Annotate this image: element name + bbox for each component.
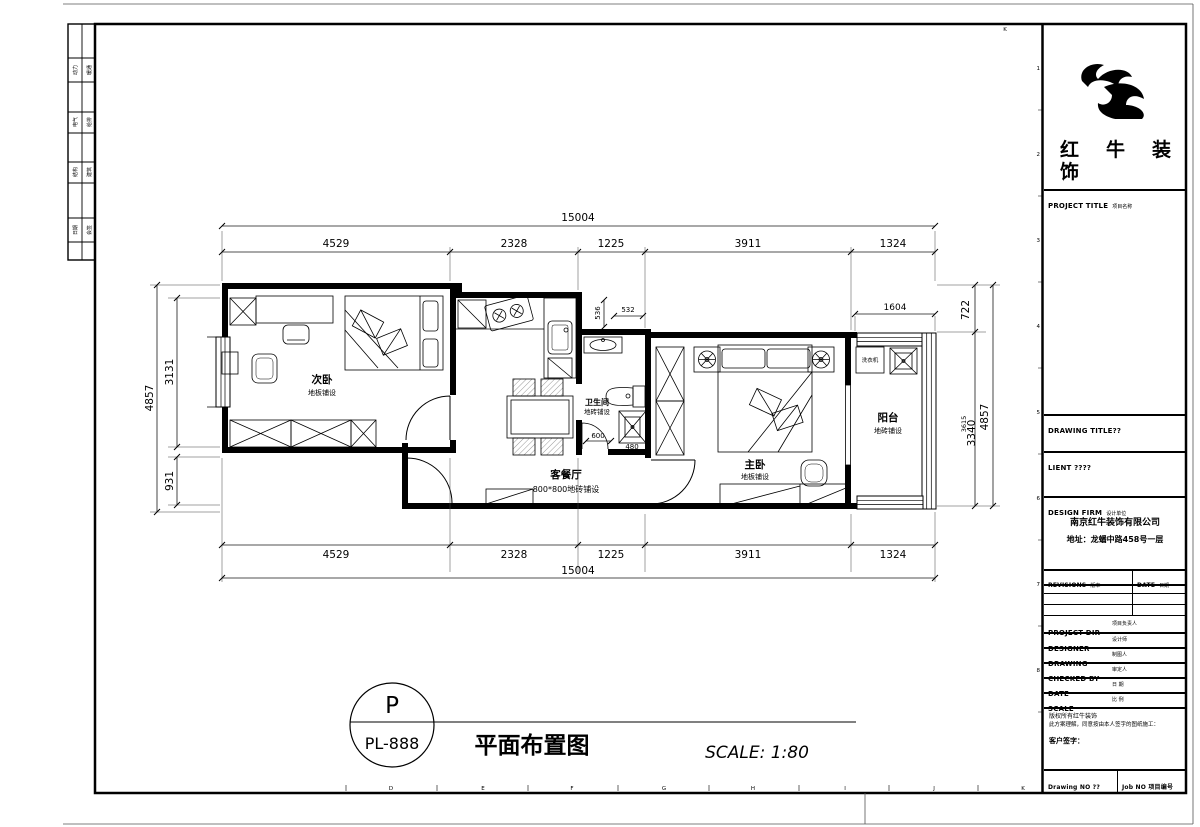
dim-shower-width: 480	[625, 443, 638, 451]
project-title-label: PROJECT TITLE	[1048, 202, 1108, 210]
counter	[544, 298, 576, 378]
design-firm-section: DESIGN FIRM设计单位 南京红牛装饰有限公司 地址：龙蟠中路458号一层	[1044, 498, 1186, 571]
revision-row	[1044, 594, 1186, 605]
drawing-title-section: DRAWING TITLE??	[1044, 416, 1186, 453]
dim-bath-niche-h: 532	[621, 306, 634, 314]
dim-bottom-seg: 4529	[323, 549, 350, 561]
ruler-letter: J	[932, 786, 935, 792]
kitchen-furniture	[456, 295, 576, 378]
copyright-line1: 版权所有红牛装饰	[1049, 713, 1183, 721]
dim-top-seg: 1324	[880, 238, 907, 250]
nightstand	[694, 347, 720, 372]
ruler-letter: G	[662, 786, 666, 792]
washbasin	[584, 337, 622, 353]
master-door	[651, 460, 695, 504]
bubble-code: PL-888	[365, 734, 420, 753]
room-label-bathroom: 卫生间	[585, 397, 609, 407]
sheet-frame	[63, 4, 1193, 824]
footer-title: P PL-888 平面布置图 SCALE: 1:80	[350, 683, 856, 767]
dim-left: 3131	[164, 359, 176, 386]
bedroom2-furniture	[222, 296, 443, 447]
revisions-header: REVISIONS版本 DATE日期	[1044, 571, 1186, 586]
scale-label-zh: 比 例	[1112, 696, 1124, 703]
room-labels: 次卧 地板铺设 客餐厅 800*800地砖铺设 卫生间 地砖铺设 主卧 地板铺设…	[308, 356, 902, 494]
room-label-master: 主卧	[745, 458, 766, 471]
bed	[718, 345, 812, 452]
ruler-number: 5	[1037, 410, 1041, 416]
ruler-letter: I	[844, 786, 846, 792]
floor-plan-canvas: 动力 暖通 电气 给排 结构 建筑 日期 会签 D E F G H I J K …	[0, 0, 1200, 827]
project-dir-row: PROJECT DIR项目负责人	[1044, 616, 1186, 634]
ruler-number: 7	[1037, 582, 1041, 588]
dining-chair	[513, 379, 563, 455]
room-finish-bedroom2: 地板铺设	[308, 388, 336, 397]
checked-by-row: CHECKED BY审定人	[1044, 664, 1186, 679]
drawing-sheet: 动力 暖通 电气 给排 结构 建筑 日期 会签 D E F G H I J K …	[0, 0, 1200, 827]
ruler-letter: K	[1021, 786, 1025, 792]
master-furniture	[656, 345, 846, 507]
toilet	[606, 386, 645, 407]
sink	[548, 321, 572, 354]
checked-by-label-zh: 审定人	[1112, 666, 1127, 673]
dimensions: 15004 4529 2328 1225 3911 1324 4529 2328…	[144, 212, 1000, 582]
company-logo-icon	[1074, 61, 1156, 119]
dim-overall-bottom: 15004	[561, 565, 595, 577]
strip-cell: 建筑	[86, 167, 93, 177]
designer-label-zh: 设计师	[1112, 636, 1127, 643]
ruler-number: 2	[1037, 152, 1041, 158]
ruler-number: 8	[1037, 668, 1041, 674]
bed	[345, 296, 443, 370]
dim-top-seg: 1225	[598, 238, 625, 250]
dim-bottom-seg: 1324	[880, 549, 907, 561]
dim-balcony-top: 1604	[884, 303, 907, 313]
dim-left: 4857	[144, 385, 156, 412]
strip-cell: 结构	[72, 167, 79, 177]
dim-bottom-seg: 2328	[501, 549, 528, 561]
strip-cell: 日期	[73, 225, 79, 235]
wardrobe-box	[656, 347, 684, 401]
dimension-ticks	[154, 223, 996, 581]
fridge	[548, 358, 572, 378]
room-finish-living: 800*800地砖铺设	[533, 484, 600, 494]
floor-drain	[890, 348, 917, 374]
firm-address: 地址：龙蟠中路458号一层	[1044, 534, 1186, 545]
ruler-number: 1	[1037, 66, 1041, 72]
ruler-number: 4	[1037, 324, 1041, 330]
balcony-slider	[846, 385, 851, 465]
dim-left: 931	[164, 471, 176, 491]
ruler-letter: D	[389, 786, 393, 792]
room-finish-bathroom: 地砖铺设	[584, 407, 611, 416]
wardrobe-row	[230, 420, 376, 447]
desk	[256, 296, 333, 323]
dim-bottom-seg: 3911	[735, 549, 762, 561]
job-no-label: Job NO 项目编号	[1122, 784, 1173, 791]
drawing-title: 平面布置图	[475, 732, 590, 759]
title-block: 红牛装 饰 PROJECT TITLE项目名称 DRAWING TITLE?? …	[1044, 25, 1186, 792]
copyright-line2: 此方案理解，同意按由本人签字的图纸施工：	[1049, 721, 1183, 729]
date-row: DATE日 期	[1044, 679, 1186, 694]
strip-cell: 给排	[86, 117, 93, 127]
room-label-balcony: 阳台	[878, 411, 899, 424]
strip-cell: 电气	[72, 117, 79, 127]
bedroom2-door	[406, 396, 450, 440]
ruler-letter-top: K	[1003, 27, 1007, 33]
drawing-number-section: Drawing NO ?? Job NO 项目编号	[1044, 771, 1186, 792]
entry-door	[407, 458, 452, 503]
project-dir-label-zh: 项目负责人	[1112, 620, 1137, 627]
strip-cell: 会签	[86, 225, 93, 235]
floor-plan: 次卧 地板铺设 客餐厅 800*800地砖铺设 卫生间 地砖铺设 主卧 地板铺设…	[144, 212, 1000, 582]
room-finish-master: 地板铺设	[741, 472, 769, 481]
chair	[252, 354, 277, 383]
ruler-letter: H	[751, 786, 755, 792]
stool	[801, 460, 827, 486]
washer-label: 洗衣机	[862, 356, 879, 364]
project-title-section: PROJECT TITLE项目名称	[1044, 191, 1186, 416]
brand-name-line1: 红牛装	[1060, 135, 1198, 162]
drawing-scale: SCALE: 1:80	[705, 743, 809, 763]
ruler-number: 3	[1037, 238, 1041, 244]
ruler-letter: E	[481, 786, 485, 792]
dim-bath-width: 600	[591, 432, 604, 440]
bubble-letter: P	[385, 693, 399, 719]
room-label-bedroom2: 次卧	[312, 373, 333, 386]
revision-row	[1044, 605, 1186, 616]
ruler-letter: F	[570, 786, 573, 792]
dim-bath-niche-v: 536	[594, 306, 602, 320]
dim-right: 4857	[979, 404, 991, 431]
room-label-living: 客餐厅	[549, 468, 582, 481]
firm-name: 南京红牛装饰有限公司	[1044, 515, 1186, 528]
bathroom-fixtures	[584, 337, 646, 443]
dim-right: 3340	[966, 420, 978, 447]
copyright-section: 版权所有红牛装饰 此方案理解，同意按由本人签字的图纸施工： 客户签字：	[1044, 709, 1186, 771]
dining-table	[507, 396, 573, 438]
strip-cell: 动力	[72, 65, 79, 75]
client-signature-label: 客户签字：	[1049, 737, 1183, 745]
ruler-number: 6	[1037, 496, 1041, 502]
dim-top-seg: 2328	[501, 238, 528, 250]
chair	[283, 325, 309, 344]
stove	[484, 295, 533, 332]
shower-drain	[619, 411, 646, 443]
client-section: LIENT ????	[1044, 453, 1186, 498]
dim-overall-top: 15004	[561, 212, 595, 224]
drawing-label-zh: 制图人	[1112, 651, 1127, 658]
wardrobe-box	[656, 401, 684, 455]
drawing-row: DRAWING制图人	[1044, 649, 1186, 664]
brand-section: 红牛装 饰	[1044, 25, 1186, 191]
dim-top-seg: 3911	[735, 238, 762, 250]
brand-name-line2: 饰	[1060, 157, 1079, 184]
shoe-cabinet	[486, 489, 533, 504]
drawing-no-label: Drawing NO ??	[1048, 784, 1100, 791]
wardrobe-box	[230, 298, 256, 325]
dim-right: 722	[960, 300, 972, 320]
project-title-label-zh: 项目名称	[1112, 204, 1132, 210]
signature-strip: 动力 暖通 电气 给排 结构 建筑 日期 会签	[68, 24, 95, 260]
client-label: LIENT ????	[1048, 464, 1091, 472]
flue-box	[458, 300, 486, 328]
dimension-lines	[157, 226, 993, 578]
drawing-title-label: DRAWING TITLE??	[1048, 427, 1121, 435]
revision-row	[1044, 586, 1186, 594]
date-label-zh: 日 期	[1112, 681, 1124, 688]
scale-row: SCALE比 例	[1044, 694, 1186, 709]
dim-top-seg: 4529	[323, 238, 350, 250]
dim-bottom-seg: 1225	[598, 549, 625, 561]
strip-cell: 暖通	[86, 65, 93, 75]
designer-row: DESIGNER设计师	[1044, 634, 1186, 649]
room-finish-balcony: 地砖铺设	[874, 426, 902, 435]
